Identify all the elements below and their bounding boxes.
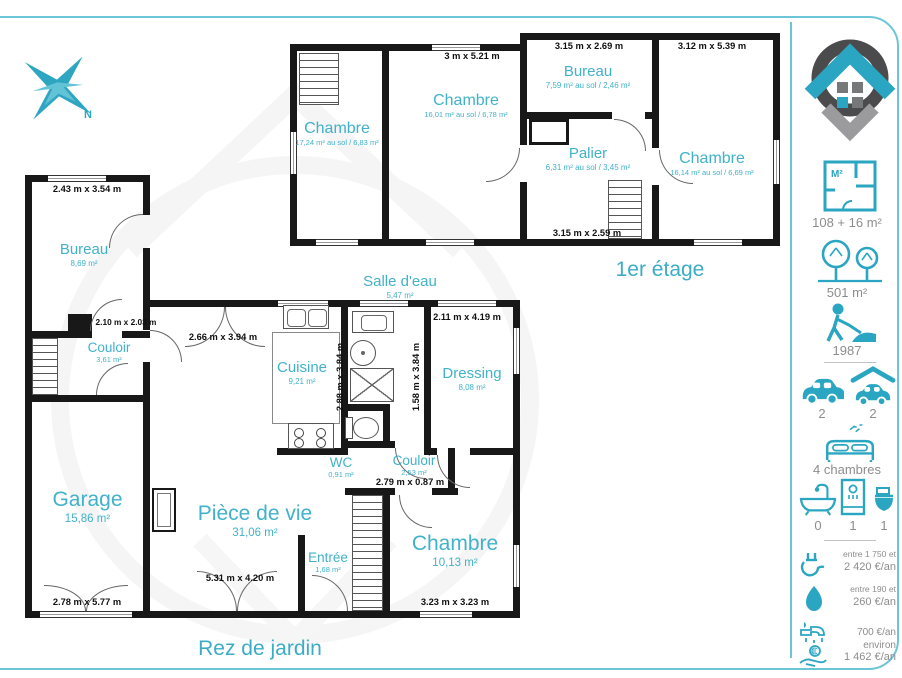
electricity-cost: entre 1 750 et 2 420 €/an bbox=[822, 549, 896, 574]
dimension-label: 2.11 m x 4.19 m bbox=[408, 312, 526, 322]
washbasin bbox=[350, 340, 376, 366]
room-label-couloir: Couloir 3,61 m² bbox=[72, 340, 146, 365]
window bbox=[694, 239, 742, 246]
wall bbox=[143, 175, 150, 215]
closet-box bbox=[529, 119, 569, 145]
dimension-label: 2.79 m x 0.87 m bbox=[358, 477, 462, 487]
tax-cost: 1 462 €/an bbox=[822, 650, 896, 664]
room-label-chambre: Chambre 16,14 m² au sol / 6,69 m² bbox=[648, 150, 776, 177]
room-label-dressing: Dressing 8,08 m² bbox=[428, 366, 516, 393]
floorplan-page: N 3 m x 5.21 m 3.15 m x 2.69 m 3.12 m x … bbox=[0, 0, 902, 678]
room-label-chambre: Chambre 16,01 m² au sol / 6,78 m² bbox=[402, 92, 530, 119]
bathroom-vanity bbox=[352, 311, 394, 333]
room-label-couloir2: Couloir 2,53 m² bbox=[368, 453, 460, 478]
window bbox=[432, 44, 480, 51]
dimension-label: 2.66 m x 3.94 m bbox=[158, 332, 288, 342]
garage-door bbox=[40, 611, 132, 618]
wall bbox=[645, 112, 652, 119]
agency-logo bbox=[800, 28, 900, 146]
dimension-label: 3.23 m x 3.23 m bbox=[394, 597, 516, 607]
window bbox=[513, 545, 520, 587]
dimension-label: 2.78 m x 5.77 m bbox=[28, 597, 146, 607]
dimension-label: 3 m x 5.21 m bbox=[402, 51, 542, 61]
shower-icon bbox=[840, 478, 866, 516]
parking-count: 2 bbox=[800, 406, 844, 421]
kitchen-sink bbox=[283, 305, 329, 329]
toilet-count: 1 bbox=[872, 518, 896, 533]
toilet-icon bbox=[872, 486, 896, 516]
dimension-label: 3.12 m x 5.39 m bbox=[652, 41, 772, 51]
bathtub-icon bbox=[798, 482, 838, 516]
dimension-label: 2.10 m x 2.03 m bbox=[88, 317, 164, 327]
room-label-palier: Palier 6,31 m² au sol / 3,45 m² bbox=[524, 146, 652, 173]
dimension-label: 1.58 m x 3.84 m bbox=[411, 323, 421, 431]
wall bbox=[345, 488, 395, 495]
land-trees-icon bbox=[812, 238, 888, 284]
garage-car-icon bbox=[850, 366, 896, 406]
wall bbox=[341, 441, 395, 448]
dimension-label: 3.15 m x 2.69 m bbox=[528, 41, 650, 51]
parking-car-icon bbox=[800, 374, 844, 404]
water-cost: 700 €/an environ bbox=[822, 626, 896, 652]
staircase bbox=[32, 338, 58, 395]
wall bbox=[520, 182, 527, 239]
window bbox=[48, 175, 106, 182]
wall bbox=[277, 448, 348, 455]
garage-count: 2 bbox=[850, 406, 896, 421]
room-label-garage: Garage 15,86 m² bbox=[30, 488, 145, 525]
staircase bbox=[299, 53, 339, 105]
room-label-bureau: Bureau 8,69 m² bbox=[28, 242, 140, 269]
floorplan-surface-icon: M² bbox=[823, 160, 877, 212]
construction-year-icon bbox=[818, 302, 880, 344]
dimension-label: 2.88 m x 3.84 m bbox=[335, 323, 345, 431]
year-built-value: 1987 bbox=[792, 343, 902, 358]
room-label-entree: Entrée 1,68 m² bbox=[299, 550, 357, 575]
room-label-bureau: Bureau 7,59 m² au sol / 2,46 m² bbox=[524, 64, 652, 91]
compass-icon: N bbox=[16, 48, 108, 134]
stove bbox=[288, 423, 334, 449]
sidebar-separator bbox=[824, 540, 876, 541]
room-label-wc: WC 0,91 m² bbox=[312, 455, 370, 480]
sidebar-separator bbox=[824, 362, 876, 363]
svg-text:N: N bbox=[84, 109, 92, 121]
gas-cost: entre 190 et 260 €/an bbox=[822, 584, 896, 609]
window bbox=[420, 611, 472, 618]
floor-title-rez-de-jardin: Rez de jardin bbox=[155, 637, 365, 661]
toilet-tank bbox=[345, 417, 353, 439]
window bbox=[426, 239, 474, 246]
bathtub-count: 0 bbox=[798, 518, 838, 533]
room-label-salle-deau: Salle d'eau 5,47 m² bbox=[348, 274, 452, 301]
wall bbox=[520, 33, 780, 40]
wall bbox=[383, 495, 390, 611]
dimension-label: 3.15 m x 2.59 m bbox=[528, 228, 646, 238]
wall bbox=[432, 488, 458, 495]
wall bbox=[25, 395, 150, 402]
bedrooms-icon bbox=[820, 424, 880, 462]
shower bbox=[350, 368, 394, 402]
window bbox=[360, 300, 408, 307]
wall bbox=[652, 185, 659, 239]
floor-title-1er-etage: 1er étage bbox=[570, 258, 750, 282]
dimension-label: 2.43 m x 3.54 m bbox=[28, 184, 146, 194]
bedrooms-value: 4 chambres bbox=[792, 462, 902, 477]
sidebar-divider bbox=[790, 22, 792, 658]
wall bbox=[470, 448, 520, 455]
wall bbox=[290, 44, 527, 51]
wall bbox=[652, 40, 659, 148]
room-label-chambre: Chambre 17,24 m² au sol / 6,83 m² bbox=[284, 120, 390, 147]
window bbox=[316, 239, 358, 246]
room-label-piece-de-vie: Pièce de vie 31,06 m² bbox=[170, 502, 340, 539]
room-label-chambre: Chambre 10,13 m² bbox=[396, 532, 514, 569]
dimension-label: 5.31 m x 4.20 m bbox=[176, 573, 304, 583]
svg-text:M²: M² bbox=[831, 169, 843, 180]
window bbox=[438, 300, 496, 307]
toilet-bowl bbox=[353, 417, 379, 439]
shower-count: 1 bbox=[840, 518, 866, 533]
land-area-value: 501 m² bbox=[792, 285, 902, 300]
wall bbox=[527, 112, 612, 119]
wall bbox=[122, 331, 150, 338]
surface-value: 108 + 16 m² bbox=[792, 215, 902, 230]
